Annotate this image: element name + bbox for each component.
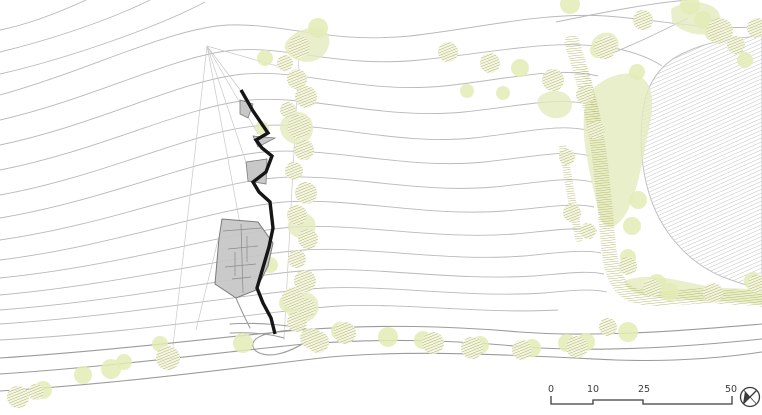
tree-soft: [623, 217, 641, 235]
tree-hatched: [480, 53, 500, 73]
site-plan-drawing: 0102550: [0, 0, 762, 415]
tree-soft: [496, 86, 510, 100]
tree-soft: [618, 322, 638, 342]
tree-hatched: [156, 346, 180, 370]
tree-hatched: [619, 257, 637, 275]
tree-hatched: [703, 283, 723, 303]
tree-hatched: [280, 102, 296, 118]
tree-hatched: [295, 86, 317, 108]
scale-label: 0: [548, 384, 554, 395]
tree-hatched: [277, 55, 293, 71]
scale-bar: 0102550: [548, 384, 737, 404]
tree-hatched: [727, 36, 745, 54]
tree-soft: [629, 191, 647, 209]
tree-hatched: [298, 229, 318, 249]
tree-hatched: [334, 322, 356, 344]
tree-hatched: [287, 205, 307, 225]
compass-north-icon: [741, 388, 760, 407]
tree-soft: [74, 366, 92, 384]
tree-hatched: [542, 69, 564, 91]
tree-hatched: [587, 121, 605, 139]
pond-hatch: [641, 36, 762, 288]
tree-hatched: [512, 340, 532, 360]
tree-hatched: [643, 279, 661, 297]
tree-hatched: [294, 140, 314, 160]
tree-hatched: [307, 331, 329, 353]
tree-soft: [737, 52, 753, 68]
tree-soft: [661, 283, 679, 301]
tree-hatched: [599, 318, 617, 336]
scale-label: 50: [725, 384, 737, 395]
tree-hatched: [599, 36, 617, 54]
tree-hatched: [559, 149, 575, 165]
tree-soft: [308, 18, 328, 38]
tree-hatched: [576, 86, 594, 104]
tree-soft: [560, 0, 580, 14]
tree-hatched: [28, 384, 44, 400]
tree-hatched: [287, 115, 311, 139]
tree-hatched: [288, 36, 310, 58]
tree-hatched: [287, 69, 307, 89]
tree-hatched: [580, 223, 596, 239]
tree-soft: [460, 84, 474, 98]
tree-hatched: [288, 250, 306, 268]
tree-soft: [511, 59, 529, 77]
tree-hatched: [461, 337, 483, 359]
site-plan-svg: 0102550: [0, 0, 762, 415]
tree-hatched: [438, 42, 458, 62]
tree-soft: [233, 333, 253, 353]
tree-soft: [378, 327, 398, 347]
tree-hatched: [295, 182, 317, 204]
tree-hatched: [7, 386, 29, 408]
site-plan-canvas: 0102550: [0, 0, 762, 415]
water-body: [641, 36, 762, 288]
tree-hatched: [747, 18, 762, 38]
tree-hatched: [563, 204, 581, 222]
scale-label: 25: [638, 384, 650, 395]
tree-hatched: [287, 312, 307, 332]
tree-hatched: [566, 336, 588, 358]
tree-soft: [116, 354, 132, 370]
scale-label: 10: [587, 384, 599, 395]
tree-hatched: [633, 10, 653, 30]
tree-hatched: [285, 162, 303, 180]
tree-soft: [257, 50, 273, 66]
tree-hatched: [422, 332, 444, 354]
tree-soft: [629, 64, 645, 80]
